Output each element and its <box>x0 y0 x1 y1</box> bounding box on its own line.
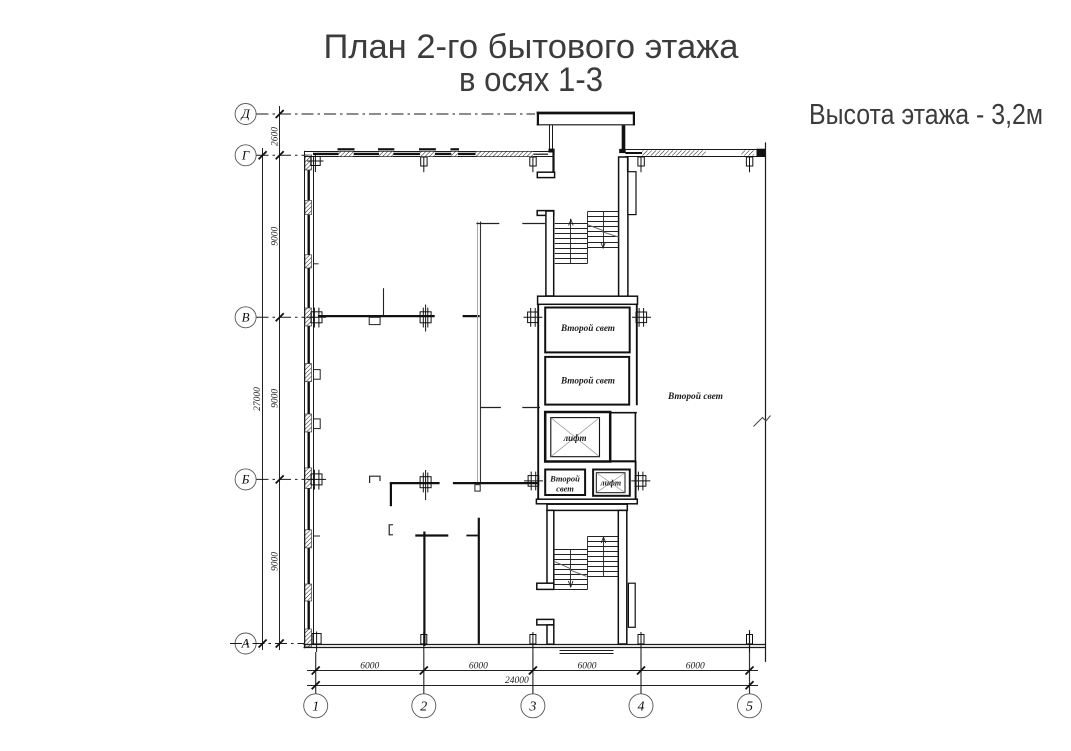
svg-text:27000: 27000 <box>253 387 263 411</box>
svg-text:2: 2 <box>420 699 427 714</box>
svg-text:6000: 6000 <box>360 661 379 671</box>
svg-text:1: 1 <box>312 699 319 714</box>
svg-text:в осях 1-3: в осях 1-3 <box>459 61 603 99</box>
svg-text:Б: Б <box>241 472 250 487</box>
svg-text:3: 3 <box>528 699 536 714</box>
svg-text:Второй свет: Второй свет <box>667 391 723 402</box>
svg-text:9000: 9000 <box>270 552 280 571</box>
svg-text:Второй свет: Второй свет <box>560 376 615 387</box>
svg-text:6000: 6000 <box>686 661 705 671</box>
svg-text:4: 4 <box>638 699 645 714</box>
svg-text:Второй: Второй <box>549 474 580 484</box>
svg-text:5: 5 <box>746 699 753 714</box>
svg-text:9000: 9000 <box>270 389 280 408</box>
svg-text:Второй свет: Второй свет <box>560 323 615 334</box>
svg-text:9000: 9000 <box>270 227 280 246</box>
svg-text:свет: свет <box>556 484 574 494</box>
svg-text:Высота этажа - 3,2м: Высота этажа - 3,2м <box>809 99 1043 131</box>
svg-text:лифт: лифт <box>562 433 586 443</box>
svg-text:2600: 2600 <box>270 127 280 146</box>
svg-text:лифт: лифт <box>600 479 622 488</box>
svg-text:В: В <box>242 310 250 325</box>
svg-text:24000: 24000 <box>505 676 529 686</box>
svg-text:Г: Г <box>241 148 250 163</box>
svg-text:Д: Д <box>239 106 250 121</box>
svg-text:6000: 6000 <box>578 661 597 671</box>
svg-text:6000: 6000 <box>469 661 488 671</box>
